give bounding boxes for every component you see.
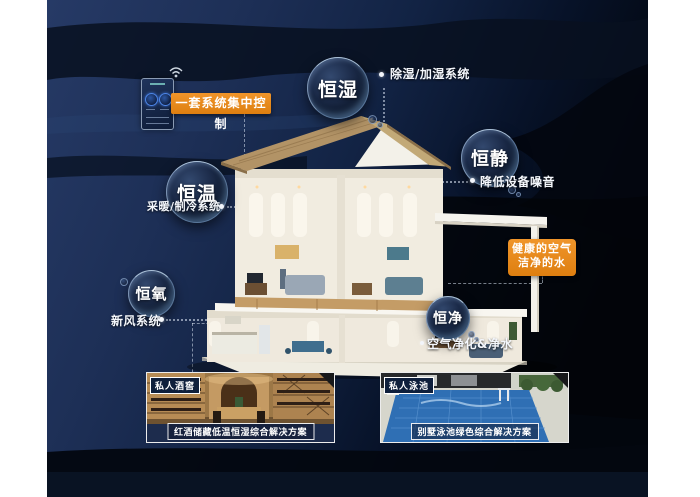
pool-tag: 私人泳池 — [384, 377, 434, 394]
corner-ribbon — [319, 373, 334, 388]
wifi-icon — [167, 62, 185, 78]
bubble-oxygen-label: 恒氧 — [135, 283, 167, 304]
bubble-humidity-label: 恒湿 — [318, 75, 358, 102]
panel-header — [150, 83, 165, 85]
bubble-purity-label: 恒净 — [433, 308, 463, 328]
mini-bubble — [120, 278, 128, 286]
caption-oxygen: 新风系统 — [111, 312, 161, 329]
pool-caption: 别墅泳池绿色综合解决方案 — [410, 423, 538, 440]
central-control-label: 一套系统集中控制 — [171, 93, 271, 114]
bubble-quiet-label: 恒静 — [471, 145, 509, 171]
bullet-dot — [379, 72, 384, 77]
caption-humidity: 除湿/加湿系统 — [390, 65, 470, 82]
control-knob-left — [145, 93, 158, 106]
infographic-canvas: 一套系统集中控制 恒湿 除湿/加湿系统 恒静 降低设备噪音 恒温 采暖/制冷系统… — [0, 0, 700, 497]
kitchen-cabinets — [212, 332, 257, 354]
wall-art — [275, 245, 299, 259]
pool-card: 私人泳池 别墅泳池绿色综合解决方案 — [380, 372, 569, 443]
mini-bubble — [516, 192, 521, 197]
wall-art — [387, 247, 409, 260]
bubble-humidity: 恒湿 — [307, 57, 369, 119]
smart-control-panel — [141, 78, 174, 130]
bubble-purity: 恒净 — [426, 296, 470, 340]
dining-table — [292, 341, 324, 352]
corner-ribbon — [553, 373, 568, 388]
caption-temperature: 采暖/制冷系统 — [147, 198, 221, 214]
wine-cellar-tag: 私人酒窖 — [150, 377, 200, 394]
bullet-dot — [470, 178, 475, 183]
bullet-dot — [420, 341, 424, 345]
wine-cellar-caption: 红酒储藏低温恒湿综合解决方案 — [167, 423, 314, 440]
bed — [285, 275, 325, 295]
health-highlight-box: 健康的空气 洁净的水 — [508, 239, 576, 276]
bubble-oxygen: 恒氧 — [128, 270, 175, 317]
health-line2: 洁净的水 — [508, 256, 576, 270]
caption-quiet: 降低设备噪音 — [480, 173, 555, 190]
health-line1: 健康的空气 — [508, 242, 576, 256]
bullet-dot — [219, 204, 224, 209]
scene: 一套系统集中控制 恒湿 除湿/加湿系统 恒静 降低设备噪音 恒温 采暖/制冷系统… — [47, 0, 648, 497]
mini-bubble — [377, 122, 383, 128]
wine-cellar-card: 私人酒窖 红酒储藏低温恒湿综合解决方案 — [146, 372, 335, 443]
bed — [385, 277, 423, 295]
bullet-dot — [159, 317, 164, 322]
caption-purity: 空气净化&净水 — [427, 335, 513, 352]
mini-bubble — [368, 115, 377, 124]
